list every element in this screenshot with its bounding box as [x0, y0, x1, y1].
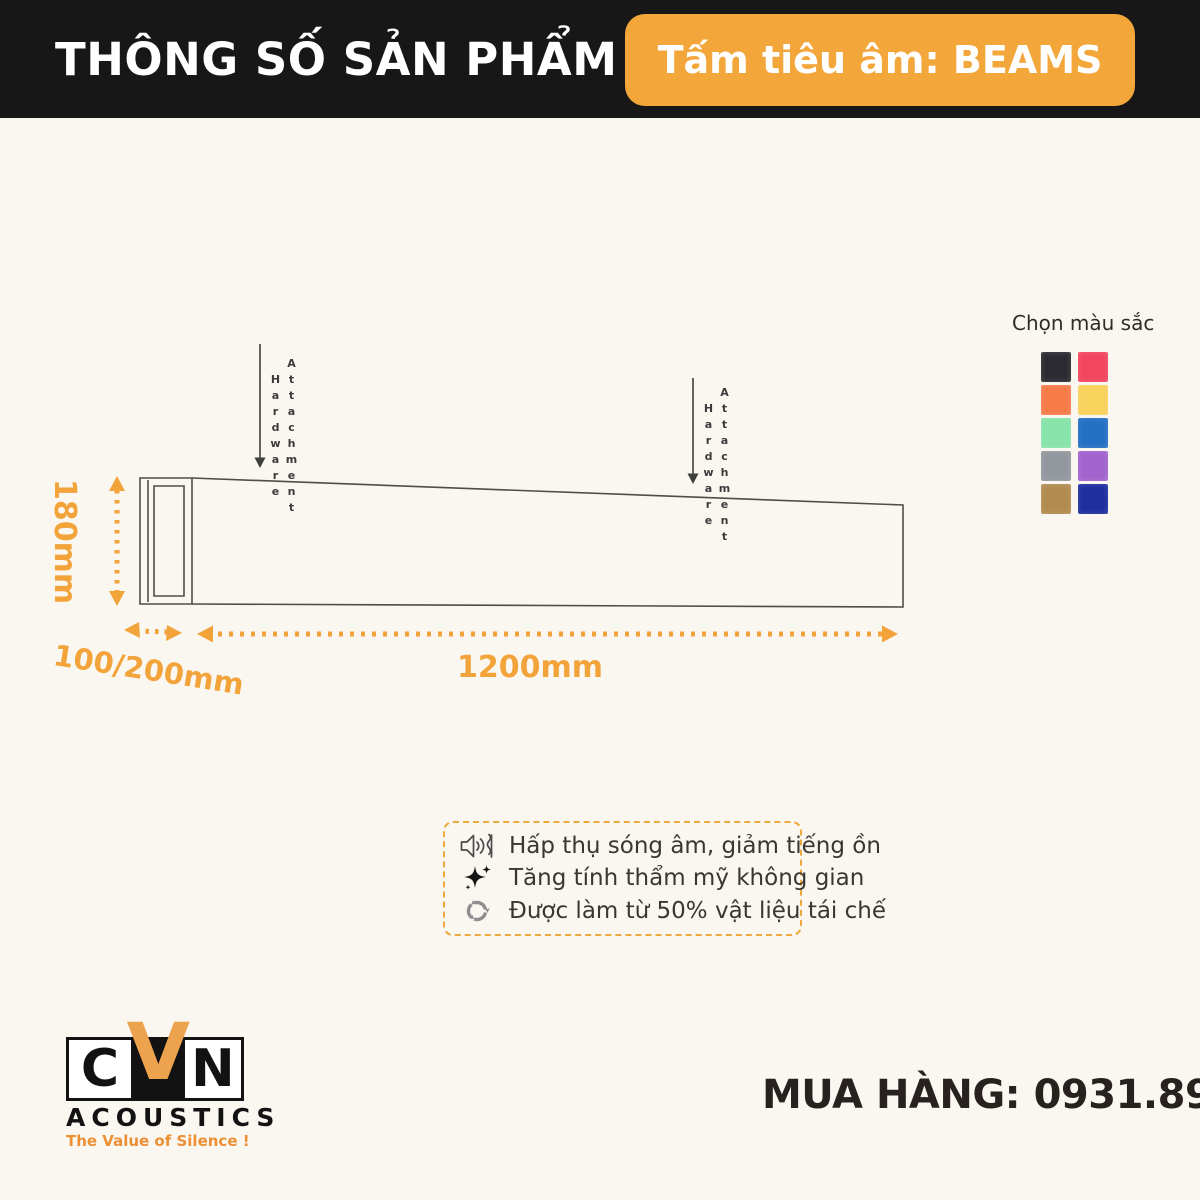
logo-letter-c: C [69, 1040, 131, 1098]
color-swatch-blue[interactable] [1078, 418, 1108, 448]
feature-text: Hấp thụ sóng âm, giảm tiếng ồn [509, 833, 881, 859]
beam-outline [140, 478, 903, 607]
hardware-attachment-label-left: Hardware Attachment [270, 357, 297, 517]
hardware-word: Hardware [703, 402, 714, 530]
feature-row-aesthetics: Tăng tính thẩm mỹ không gian [458, 862, 792, 894]
color-picker-title: Chọn màu sắc [1012, 311, 1154, 335]
height-dimension-label: 180mm [44, 480, 84, 604]
logo-name: ACOUSTICS [66, 1105, 250, 1130]
logo-letter-v: V [127, 1014, 186, 1092]
feature-row-recycled: Được làm từ 50% vật liệu tái chế [458, 896, 792, 926]
height-dimension-arrow [109, 476, 125, 606]
hardware-arrow-left [255, 344, 266, 468]
product-spec-poster: THÔNG SỐ SẢN PHẨM Tấm tiêu âm: BEAMS [0, 0, 1200, 1200]
speaker-icon [458, 831, 496, 861]
hardware-arrow-right [688, 378, 699, 484]
attachment-word: Attachment [719, 386, 730, 546]
color-swatch-yellow[interactable] [1078, 385, 1108, 415]
color-swatch-purple[interactable] [1078, 451, 1108, 481]
color-swatch-black[interactable] [1041, 352, 1071, 382]
color-swatch-gray[interactable] [1041, 451, 1071, 481]
order-phone-line: MUA HÀNG: 0931.891.939 [762, 1072, 1200, 1118]
attachment-word: Attachment [286, 357, 297, 517]
feature-row-absorption: Hấp thụ sóng âm, giảm tiếng ồn [458, 831, 792, 861]
recycle-icon [458, 896, 496, 926]
sparkle-icon [458, 862, 496, 894]
color-swatch-grid [1041, 352, 1108, 514]
color-swatch-mint-green[interactable] [1041, 418, 1071, 448]
feature-text: Tăng tính thẩm mỹ không gian [509, 865, 864, 891]
cvn-logo: V C N ACOUSTICS The Value of Silence ! [66, 1016, 244, 1148]
feature-text: Được làm từ 50% vật liệu tái chế [509, 898, 886, 924]
length-dimension-label: 1200mm [330, 653, 730, 683]
features-box: Hấp thụ sóng âm, giảm tiếng ồn Tăng tính… [443, 821, 802, 936]
product-badge: Tấm tiêu âm: BEAMS [625, 14, 1135, 106]
color-swatch-navy[interactable] [1078, 484, 1108, 514]
hardware-word: Hardware [270, 373, 281, 501]
hardware-attachment-label-right: Hardware Attachment [703, 386, 730, 546]
logo-tagline: The Value of Silence ! [66, 1132, 244, 1150]
header-bar: THÔNG SỐ SẢN PHẨM Tấm tiêu âm: BEAMS [0, 0, 1200, 118]
depth-dimension-arrow [124, 622, 182, 641]
color-swatch-pink[interactable] [1078, 352, 1108, 382]
beam-technical-drawing [0, 300, 960, 700]
product-badge-label: Tấm tiêu âm: BEAMS [658, 38, 1103, 82]
color-swatch-tan[interactable] [1041, 484, 1071, 514]
length-dimension-arrow [197, 626, 898, 643]
page-title: THÔNG SỐ SẢN PHẨM [55, 0, 618, 118]
color-swatch-orange[interactable] [1041, 385, 1071, 415]
logo-letter-n: N [185, 1040, 241, 1098]
